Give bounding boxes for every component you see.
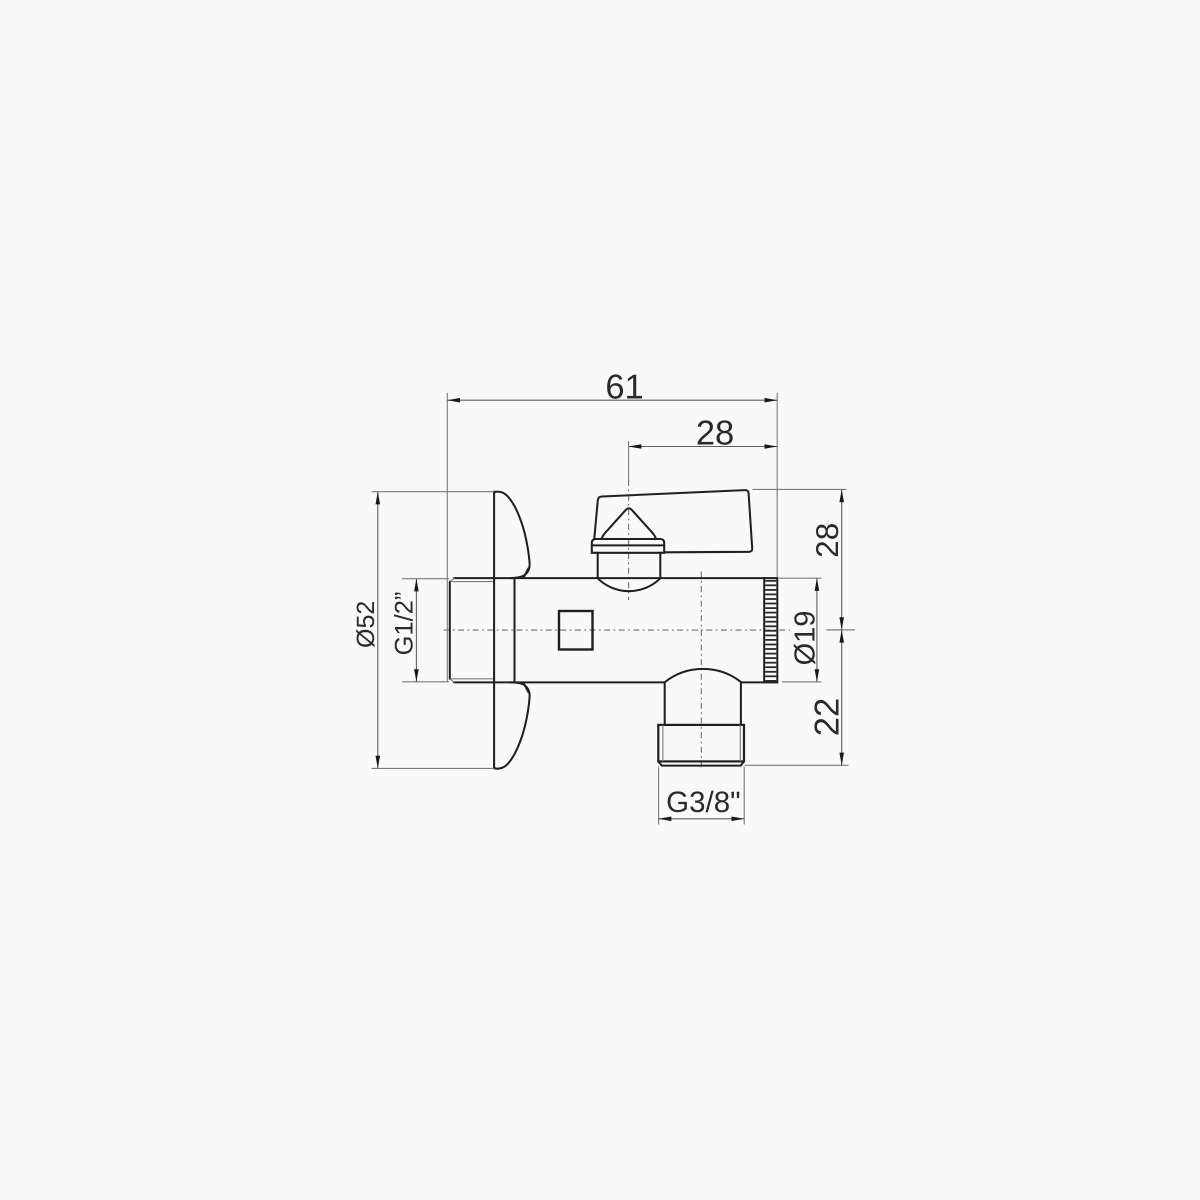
svg-text:61: 61 (605, 368, 643, 406)
svg-text:G3/8": G3/8" (666, 786, 740, 819)
svg-text:28: 28 (809, 523, 845, 558)
svg-text:28: 28 (696, 415, 734, 453)
svg-text:G1/2”: G1/2” (390, 592, 418, 656)
svg-text:Ø52: Ø52 (352, 601, 380, 648)
svg-text:22: 22 (808, 698, 846, 736)
svg-text:Ø19: Ø19 (790, 611, 822, 666)
